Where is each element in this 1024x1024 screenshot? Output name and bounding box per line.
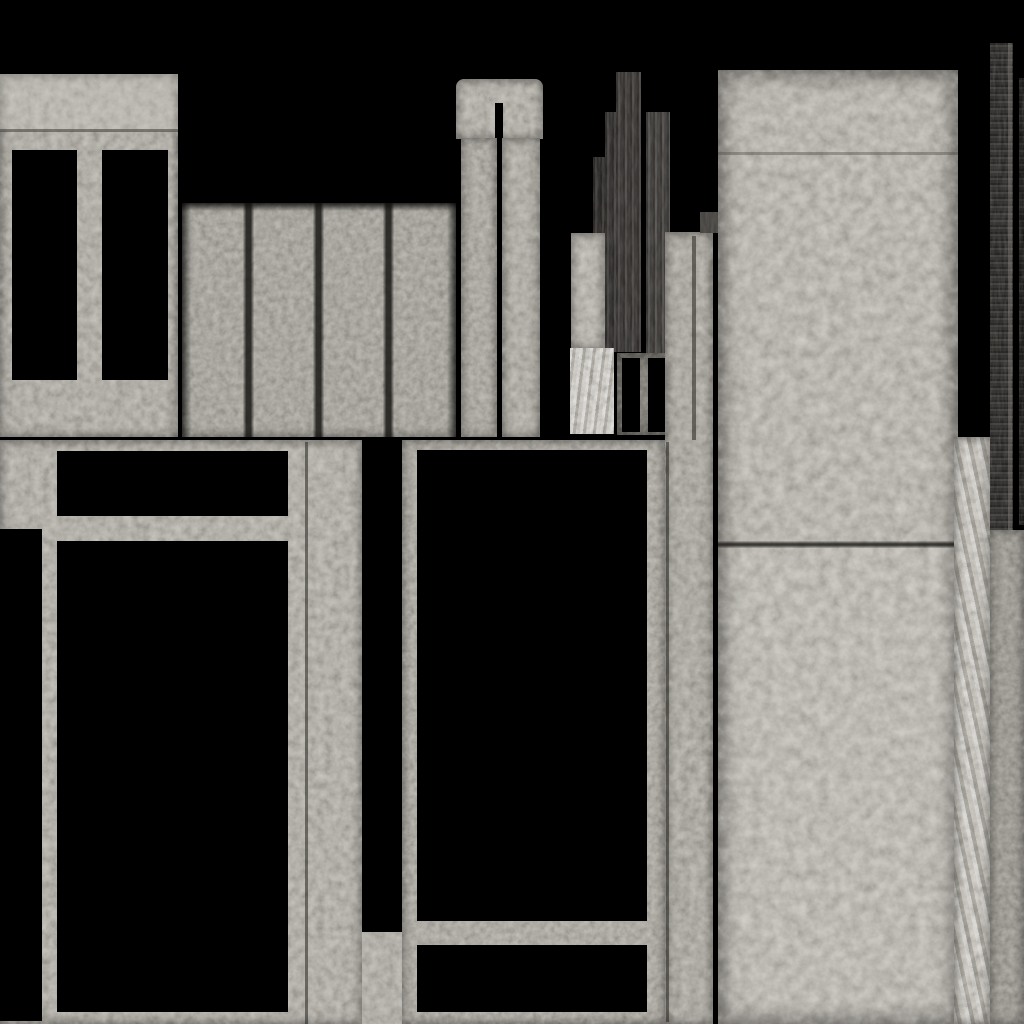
large-panel-seam: [718, 541, 958, 548]
large-panel-seam-faint: [718, 152, 958, 155]
pillar-leg-left: [461, 138, 497, 437]
rib-groove-2: [313, 203, 324, 437]
top-left-panel-upper-band: [0, 74, 178, 131]
pillar-cap-notch: [495, 103, 503, 139]
bottom-left-seam: [305, 442, 308, 1024]
bottom-left-gap-patch: [362, 932, 402, 1024]
pillar-leg-right: [502, 138, 540, 437]
window-hole-a: [12, 150, 77, 380]
transom-hole: [57, 451, 288, 516]
rib-groove-3: [383, 203, 394, 437]
rib-edge-right: [447, 203, 456, 437]
mid-column: [665, 232, 713, 1024]
right-edge-sliver: [1019, 78, 1024, 525]
rib-edge-left: [182, 203, 191, 437]
light-block: [571, 233, 605, 349]
large-panel-lower-sheen: [718, 548, 958, 1024]
dark-bar-2: [605, 112, 616, 352]
middle-window-lower-hole: [417, 945, 647, 1012]
texture-atlas: [0, 0, 1024, 1024]
bottom-right-block: [990, 530, 1024, 1024]
silver-column: [954, 437, 990, 1024]
mid-column-seam-lower: [666, 442, 669, 1022]
rib-groove-1: [243, 203, 254, 437]
left-notch-hole: [0, 529, 42, 1021]
door-hole-left: [622, 358, 640, 432]
mid-column-seam-upper: [692, 236, 696, 440]
mid-column-dark-block: [700, 212, 718, 233]
dark-bar-3: [616, 72, 641, 352]
window-hole-b: [102, 150, 168, 380]
middle-window-upper-hole: [417, 450, 647, 921]
streaked-column: [570, 348, 614, 434]
main-window-hole: [57, 541, 288, 1012]
top-left-panel-seam: [0, 129, 178, 132]
right-dark-strip-highlight: [1008, 43, 1012, 537]
door-hole-right: [648, 358, 665, 432]
